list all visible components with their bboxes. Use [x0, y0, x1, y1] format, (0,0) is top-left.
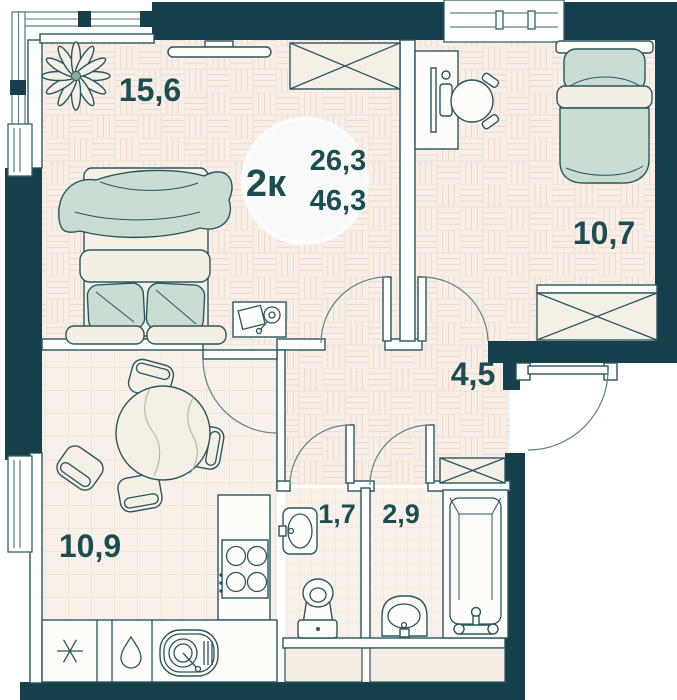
stove-counter	[218, 495, 270, 620]
single-bed-icon	[556, 41, 653, 183]
toilet-area-label: 2,9	[382, 499, 420, 529]
sink-icon	[160, 630, 218, 676]
washbasin-icon	[279, 508, 317, 554]
living-room-area-label: 15,6	[119, 72, 181, 108]
hallway-area-label: 4,5	[451, 356, 495, 392]
living-room-balcony-door	[8, 124, 32, 176]
kitchen-window	[8, 456, 32, 552]
wardrobe-bedroom-icon	[537, 285, 657, 340]
living-area-value: 26,3	[310, 145, 366, 177]
floor-plan-svg: 2к 26,3 46,3 15,6 10,7 4,5 10,9 1,7 2,9	[0, 0, 677, 700]
apartment-type-label: 2к	[246, 163, 287, 205]
shaft-left	[285, 648, 362, 682]
kitchen-counter	[42, 620, 277, 682]
kitchen-area-label: 10,9	[59, 528, 121, 564]
wardrobe-living-icon	[290, 43, 400, 89]
nightstand-icon	[233, 302, 286, 337]
double-bed-icon	[59, 168, 232, 344]
hall-cabinet-icon	[440, 458, 505, 483]
entrance-door	[528, 366, 608, 450]
shaft-right	[370, 648, 505, 682]
bedroom-window	[444, 0, 564, 42]
area-badge: 2к 26,3 46,3	[241, 117, 369, 245]
total-area-value: 46,3	[310, 185, 366, 217]
floor-plan: 2к 26,3 46,3 15,6 10,7 4,5 10,9 1,7 2,9	[0, 0, 677, 700]
pedestal-sink-icon	[382, 596, 427, 637]
bathtub-icon	[443, 490, 508, 638]
bathroom-area-label: 1,7	[318, 499, 356, 529]
bedroom-area-label: 10,7	[573, 215, 635, 251]
